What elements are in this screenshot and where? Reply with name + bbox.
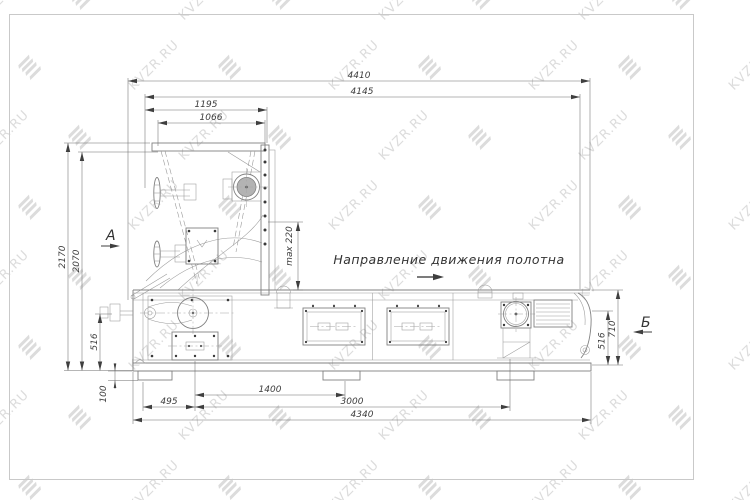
- motor-pulley: [223, 168, 268, 207]
- view-labels: А Б: [101, 228, 652, 334]
- dim-710: 710: [608, 320, 618, 337]
- technical-drawing: 4410 4145 1195 1066 2170 2070 516 100 ma…: [0, 0, 750, 500]
- handwheel-upper: [154, 178, 196, 209]
- base-frame: [133, 359, 591, 380]
- dim-495: 495: [160, 397, 177, 407]
- bearing-dome-left: [274, 286, 293, 308]
- bearing-dome-right: [478, 285, 492, 298]
- hopper-assembly: [131, 143, 275, 299]
- dim-4145: 4145: [351, 87, 374, 97]
- direction-annotation: Направление движения полотна: [333, 252, 564, 280]
- dim-1066: 1066: [200, 113, 223, 123]
- hatch-panel-1: [303, 304, 365, 345]
- ribbed-guard: [534, 300, 572, 327]
- right-end-assembly: [497, 293, 591, 358]
- foot-left: [138, 371, 172, 380]
- drive-section: [100, 294, 236, 360]
- handwheel-lower: [154, 241, 186, 267]
- dim-1400: 1400: [259, 385, 282, 395]
- dim-516-left: 516: [90, 333, 100, 350]
- view-label-a: А: [105, 228, 116, 244]
- view-b-arrow-icon: [633, 330, 643, 335]
- dim-100: 100: [99, 385, 109, 402]
- end-chute: [574, 293, 591, 358]
- foot-right: [497, 371, 534, 380]
- drawing-sheet: KVZR.RUKVZR.RUKVZR.RUKVZR.RUKVZR.RUKVZR.…: [0, 0, 750, 500]
- view-label-b: Б: [641, 315, 651, 331]
- dim-4410: 4410: [348, 71, 371, 81]
- direction-label: Направление движения полотна: [333, 252, 564, 267]
- dim-3000: 3000: [341, 397, 364, 407]
- dim-2070: 2070: [72, 249, 82, 272]
- dim-2170: 2170: [58, 245, 68, 268]
- dim-516-right: 516: [598, 332, 608, 349]
- dim-4340: 4340: [351, 410, 374, 420]
- view-a-arrow-icon: [110, 244, 120, 249]
- direction-arrow-icon: [433, 274, 444, 280]
- foot-middle: [323, 371, 360, 380]
- drive-shaft: [100, 304, 133, 321]
- dim-max-220: max 220: [285, 226, 295, 266]
- hatch-panel-2: [387, 304, 449, 345]
- dim-1195: 1195: [195, 100, 218, 110]
- conveyor-body: [100, 285, 591, 363]
